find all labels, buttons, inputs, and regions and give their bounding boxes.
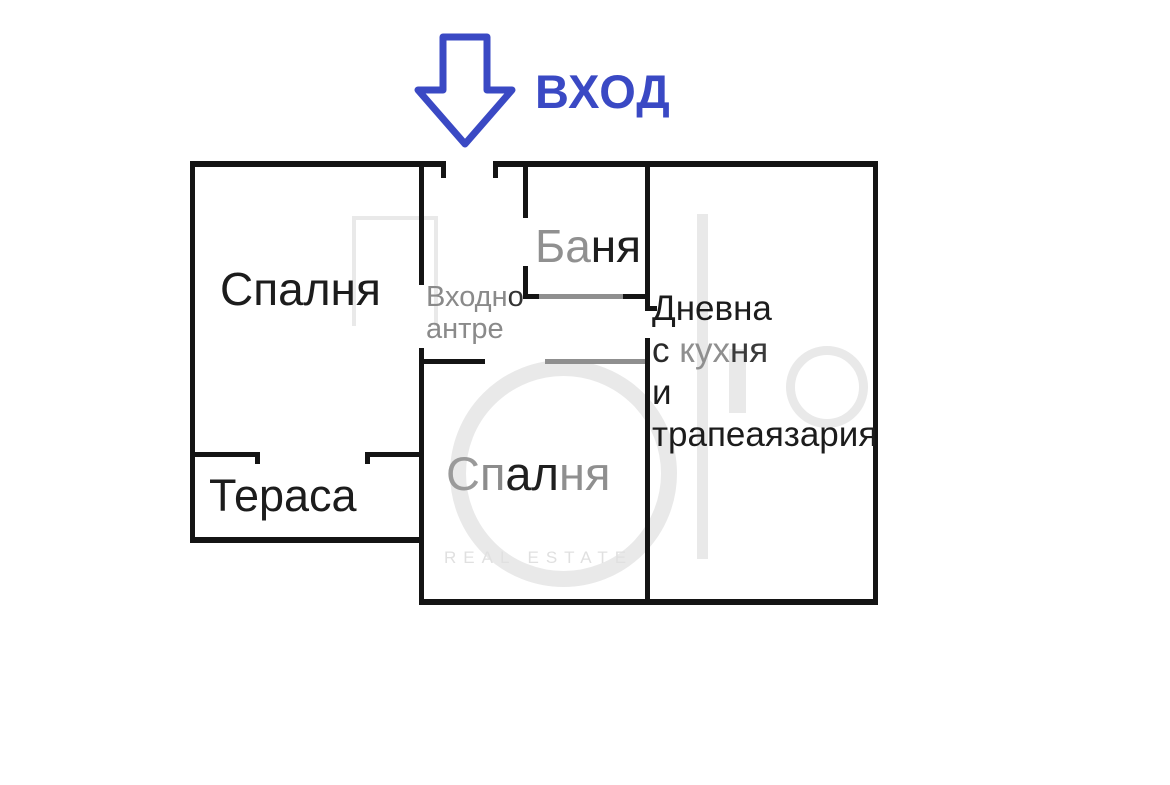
terrace-label: Тераса <box>209 470 357 522</box>
entry-hall-line2: антре <box>426 313 524 345</box>
living-line2: с кухня <box>652 330 877 372</box>
living-line4: трапеаязария <box>652 414 877 456</box>
wall-hall-left-lower <box>419 348 424 605</box>
terrace-divider-jamb-right <box>365 452 370 464</box>
wall-living-divider-upper <box>645 161 650 310</box>
bathroom-label: Баня <box>535 219 641 273</box>
wall-terrace-divider-left <box>190 452 260 457</box>
wall-hall-left-upper <box>419 161 424 285</box>
bedroom-middle-label: Спалня <box>446 446 610 501</box>
wall-terrace-divider-right <box>365 452 421 457</box>
entry-hall-label: Входно антре <box>426 281 524 345</box>
wall-terrace-bottom <box>190 537 424 543</box>
wall-top-right <box>493 161 878 167</box>
floor-plan: REAL ESTATE ВХОД Спалня Тераса Входно ан… <box>0 0 1170 785</box>
wall-living-divider-lower <box>645 338 650 605</box>
wall-midbedroom-top-left <box>419 359 485 364</box>
entry-hall-line1: Входно <box>426 281 524 313</box>
wall-midbedroom-top-right <box>545 359 645 364</box>
terrace-divider-jamb-left <box>255 452 260 464</box>
living-line1: Дневна <box>652 288 877 330</box>
entrance-jamb-left <box>441 161 446 178</box>
wall-bath-bottom-left <box>523 294 539 299</box>
living-line3: и <box>652 372 877 414</box>
wall-bath-bottom-door <box>539 294 623 299</box>
wall-top-left <box>190 161 443 167</box>
watermark-text: REAL ESTATE <box>444 548 633 568</box>
wall-outer-left <box>190 161 195 543</box>
entrance-label: ВХОД <box>535 64 671 119</box>
living-room-label: Дневна с кухня и трапеаязария <box>652 288 877 456</box>
bedroom-left-label: Спалня <box>220 262 381 316</box>
entrance-jamb-right <box>493 161 498 178</box>
entrance-arrow-icon <box>413 33 517 149</box>
wall-bath-left-upper <box>523 161 528 218</box>
